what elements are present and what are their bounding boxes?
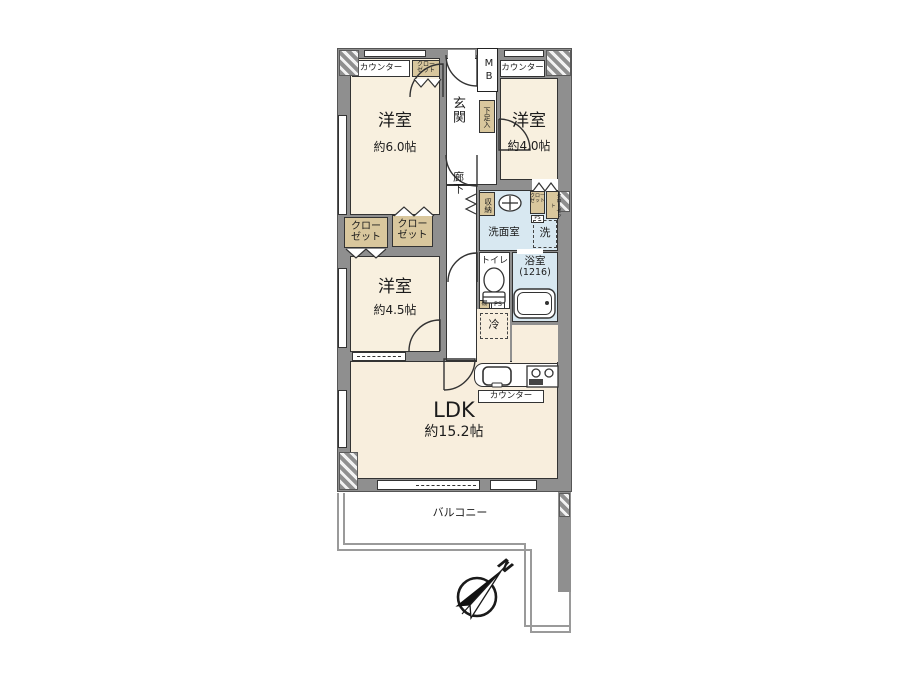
fold-closet-mid-right (394, 207, 434, 216)
compass-icon: N (457, 554, 517, 618)
bedroom6-name: 洋室 (350, 112, 440, 132)
pipe-space-lower-label: PS (491, 301, 505, 308)
bedroom4-size: 約4.0帖 (498, 140, 560, 154)
washroom-name: 洗面室 (479, 226, 529, 238)
fold-closet-bedroom4 (533, 183, 557, 191)
bedroom4-name: 洋室 (500, 112, 558, 132)
washbasin-icon (499, 195, 521, 211)
door-arc-ldk (444, 359, 475, 390)
washer-label: 洗 (533, 227, 557, 240)
floor-plan-canvas: N 洋室 約6.0帖 洋室 約4.0帖 洋室 約4.5帖 LDK 約15.2帖 … (0, 0, 920, 690)
door-arc-entrance (446, 55, 477, 86)
fold-storage (466, 194, 476, 214)
fold-closet-mid-left (346, 249, 386, 258)
meter-box-label: MB (483, 54, 495, 88)
toilet-icon (483, 268, 505, 303)
closet-top-left-label: クローゼット (412, 62, 440, 75)
bathroom-size: (1216) (512, 268, 558, 279)
bedroom45-name: 洋室 (350, 278, 440, 298)
kitchen-sink-icon (483, 367, 511, 387)
pipe-space-upper-label: PS (531, 216, 544, 222)
closet-wash-tall-label: クローゼット (549, 192, 561, 218)
kitchen-counter-label: カウンター (478, 392, 544, 402)
fold-closet-top-left (414, 79, 441, 87)
fridge-label: 冷 (480, 319, 508, 332)
entrance-name: 玄関 (449, 90, 464, 130)
bedroom6-size: 約6.0帖 (350, 141, 440, 155)
hallway-name: 廊下 (451, 166, 464, 200)
bathtub-icon (514, 289, 555, 318)
toilet-name: トイレ (479, 256, 510, 266)
ldk-size: 約15.2帖 (350, 424, 558, 440)
door-arc-toilet (448, 253, 477, 282)
stove-icon (527, 366, 558, 387)
balcony-name: バルコニー (400, 507, 520, 520)
counter-left-label: カウンター (352, 64, 410, 74)
storage-label: 収納 (483, 195, 492, 215)
bedroom45-size: 約4.5帖 (350, 304, 440, 318)
shelf-label: 棚 (479, 301, 490, 308)
closet-mid-right-label: クローゼット (392, 220, 433, 241)
bathroom-name: 浴室 (512, 255, 558, 267)
door-arc-bedroom45 (409, 320, 440, 351)
closet-wash-small-label: クローゼット (530, 194, 545, 205)
counter-right-label: カウンター (500, 64, 545, 74)
shoe-cabinet-label: 下足入 (483, 102, 491, 132)
closet-mid-left-label: クローゼット (344, 222, 388, 243)
